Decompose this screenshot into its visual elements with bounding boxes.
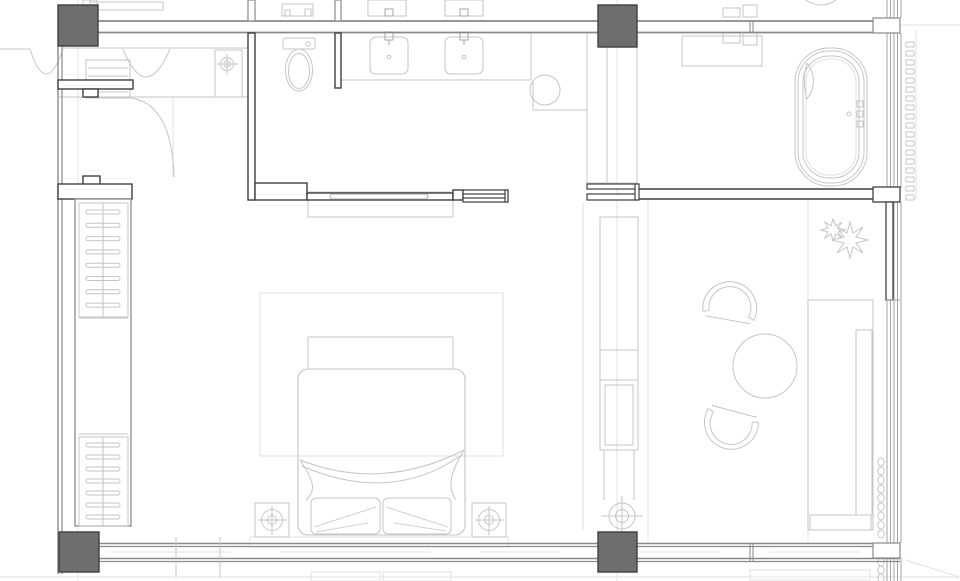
entry-door-leaf xyxy=(58,80,133,89)
mirrored-cistern-tab xyxy=(305,9,311,16)
curtain-coil xyxy=(878,485,884,493)
bathtub-jet xyxy=(857,121,863,127)
linen-closet xyxy=(587,33,637,183)
upper-floor-wall xyxy=(90,2,163,10)
mirrored-faucet xyxy=(385,9,393,16)
column xyxy=(598,532,637,572)
bathtub-jet xyxy=(857,111,863,117)
facade-hatch xyxy=(906,69,914,74)
wc-wall-right xyxy=(335,33,341,88)
curtain-coil xyxy=(878,494,884,502)
pocket-door-bar xyxy=(463,198,508,202)
facade-hatch xyxy=(906,96,914,101)
coffee-table xyxy=(733,334,797,398)
mirrored-tub-arc xyxy=(806,0,836,5)
facade-hatch xyxy=(906,123,914,128)
wall-fixture xyxy=(743,33,757,45)
mirrored-sink xyxy=(368,0,406,16)
curtain-coil xyxy=(878,476,884,484)
curtain-coil xyxy=(878,467,884,475)
armchair xyxy=(701,277,761,324)
mirrored-pillow-right xyxy=(383,572,451,581)
rug xyxy=(260,293,503,456)
leader-line xyxy=(905,560,960,577)
facade-hatch xyxy=(906,177,914,182)
door-jamb xyxy=(58,184,132,199)
entry-door-handle-tab xyxy=(83,89,98,97)
upper-partition-stub xyxy=(335,0,341,21)
mirrored-pillow-left xyxy=(311,572,380,581)
facade-hatch xyxy=(906,159,914,164)
toilet-bowl xyxy=(286,49,313,91)
facade-hatch xyxy=(906,87,914,92)
pillow xyxy=(311,498,380,534)
entry-door-swing-arc xyxy=(131,98,174,177)
curtain-coil xyxy=(878,574,884,581)
pillow xyxy=(383,498,451,534)
bathtub-basin xyxy=(803,56,859,178)
facade-hatch xyxy=(906,141,914,146)
facade-hatch xyxy=(906,186,914,191)
wall-fixture xyxy=(723,33,740,43)
blanket-fold xyxy=(300,450,464,474)
curtain-coil xyxy=(878,521,884,529)
facade-hatch xyxy=(906,60,914,65)
bed-platform xyxy=(250,537,508,547)
armchair xyxy=(698,404,760,455)
facade-hatch xyxy=(906,51,914,56)
sliding-door-panel xyxy=(330,194,428,199)
stool xyxy=(530,75,560,105)
east-wall-stub xyxy=(886,202,893,300)
curtain-coil xyxy=(878,512,884,520)
curtain-coil xyxy=(878,566,884,574)
wall-fixture xyxy=(723,8,740,17)
floor-plan xyxy=(0,0,960,581)
column xyxy=(598,5,637,47)
facade-hatch xyxy=(906,132,914,137)
pocket-door-bar xyxy=(587,184,638,189)
bathtub-drain xyxy=(847,112,851,116)
cabinet-drawer xyxy=(605,385,633,445)
column xyxy=(59,532,99,572)
facade-hatch xyxy=(906,78,914,83)
pocket-door-bar xyxy=(463,190,508,194)
window-console xyxy=(808,300,873,530)
toilet-bowl-inner xyxy=(289,54,310,89)
headboard xyxy=(308,337,453,369)
curtain-coil xyxy=(878,530,884,538)
wc-wall-left xyxy=(248,33,255,200)
window-joint-box xyxy=(873,543,900,558)
wall-fixture xyxy=(743,5,757,17)
mirrored-sink xyxy=(445,0,483,16)
partition-wall-step xyxy=(453,190,463,200)
partition-wall-block xyxy=(255,183,307,200)
north-wall-joint-box xyxy=(873,18,900,33)
pocket-door-bar xyxy=(587,194,638,200)
pocket-door-end xyxy=(635,184,639,200)
curtain-coil xyxy=(878,503,884,511)
blanket-fold xyxy=(300,460,313,500)
facade-hatch xyxy=(906,105,914,110)
dressing-cabinet xyxy=(600,217,638,450)
mid-wall-joint-box xyxy=(873,187,900,202)
facade-hatch xyxy=(906,114,914,119)
sink-drain xyxy=(387,55,391,59)
plant xyxy=(832,222,868,258)
bathtub-rim xyxy=(798,51,864,183)
shower-tray xyxy=(215,50,242,97)
mirrored-console-below xyxy=(750,570,870,580)
window-console-niche xyxy=(810,515,871,530)
facade-hatch xyxy=(906,168,914,173)
upper-partition-stub xyxy=(248,0,255,21)
bath-vanity xyxy=(682,36,762,66)
mirrored-cistern-tab xyxy=(285,10,290,16)
facade-hatch xyxy=(906,195,914,200)
window-console-top xyxy=(856,330,872,515)
mirrored-faucet xyxy=(460,9,468,16)
facade-hatch xyxy=(906,42,914,47)
curtain-coil xyxy=(878,458,884,466)
sink-drain xyxy=(462,55,466,59)
facade-hatch xyxy=(906,150,914,155)
bathtub-jet xyxy=(857,101,863,107)
floor-plan-svg xyxy=(0,0,960,581)
column xyxy=(58,5,98,46)
pocket-door-end xyxy=(505,190,508,202)
